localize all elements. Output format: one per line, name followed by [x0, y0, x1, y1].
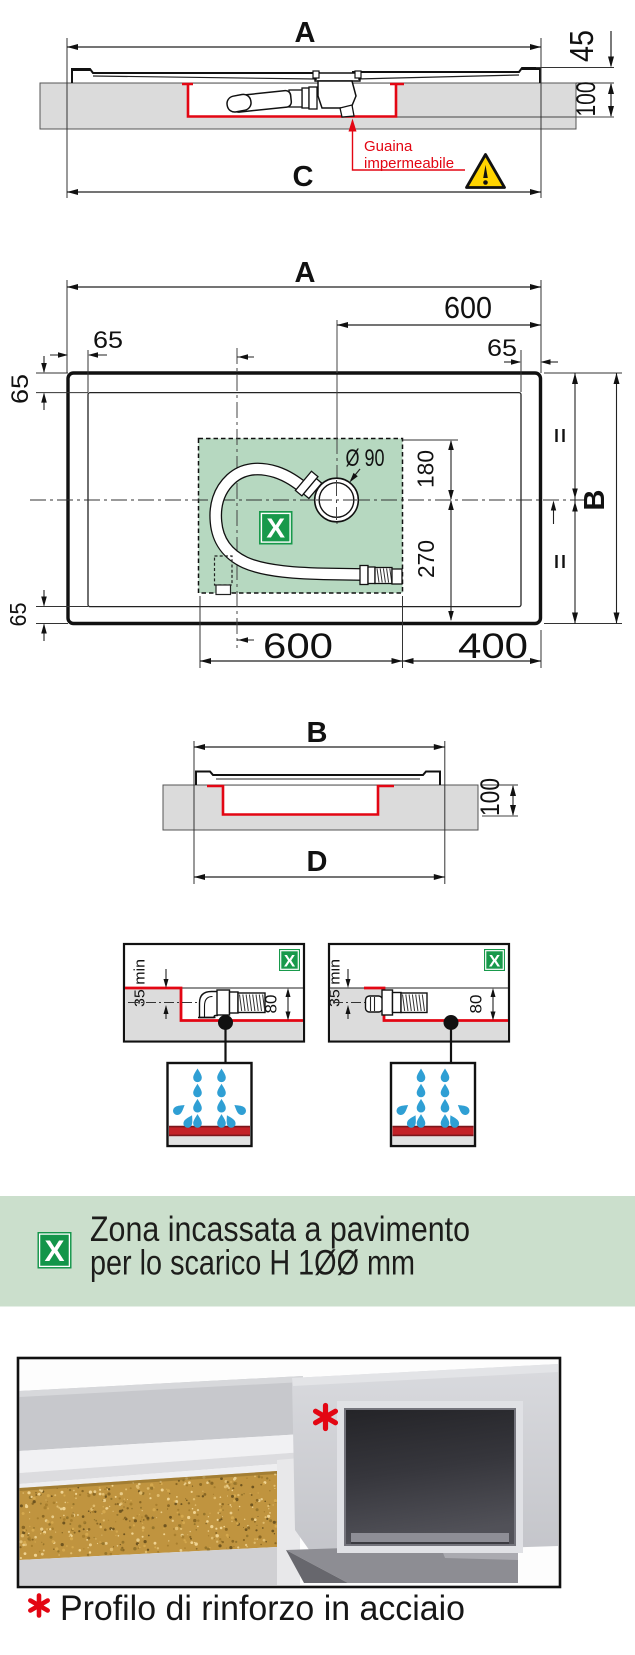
svg-text:X: X	[489, 952, 501, 971]
svg-text:impermeabile: impermeabile	[364, 155, 454, 172]
svg-text:B: B	[307, 717, 328, 749]
svg-text:400: 400	[458, 627, 528, 666]
svg-text:600: 600	[263, 627, 333, 666]
svg-text:100: 100	[475, 778, 505, 816]
svg-text:D: D	[307, 846, 328, 878]
svg-text:270: 270	[413, 540, 439, 578]
svg-text:65: 65	[7, 374, 34, 404]
svg-text:65: 65	[487, 335, 517, 362]
svg-text:X: X	[44, 1235, 64, 1268]
svg-text:600: 600	[444, 290, 492, 325]
svg-text:Guaina: Guaina	[364, 138, 413, 155]
svg-text:35 min: 35 min	[132, 959, 149, 1007]
svg-text:X: X	[284, 952, 296, 971]
svg-text:45: 45	[563, 30, 600, 62]
svg-text:A: A	[295, 17, 316, 49]
svg-text:65: 65	[5, 603, 31, 627]
svg-text:X: X	[266, 513, 285, 544]
svg-text:65: 65	[93, 327, 123, 354]
svg-text:B: B	[579, 490, 611, 511]
svg-text:80: 80	[262, 995, 281, 1014]
svg-text:100: 100	[571, 82, 601, 117]
svg-text:Ø 90: Ø 90	[346, 445, 385, 472]
svg-text:Profilo di rinforzo in acciaio: Profilo di rinforzo in acciaio	[60, 1589, 465, 1628]
svg-text:per lo scarico H 1ØØ mm: per lo scarico H 1ØØ mm	[90, 1244, 415, 1283]
svg-text:80: 80	[467, 995, 486, 1014]
svg-text:180: 180	[413, 450, 439, 488]
svg-text:A: A	[295, 257, 316, 289]
svg-text:35 min: 35 min	[327, 959, 344, 1007]
svg-text:C: C	[293, 161, 314, 193]
